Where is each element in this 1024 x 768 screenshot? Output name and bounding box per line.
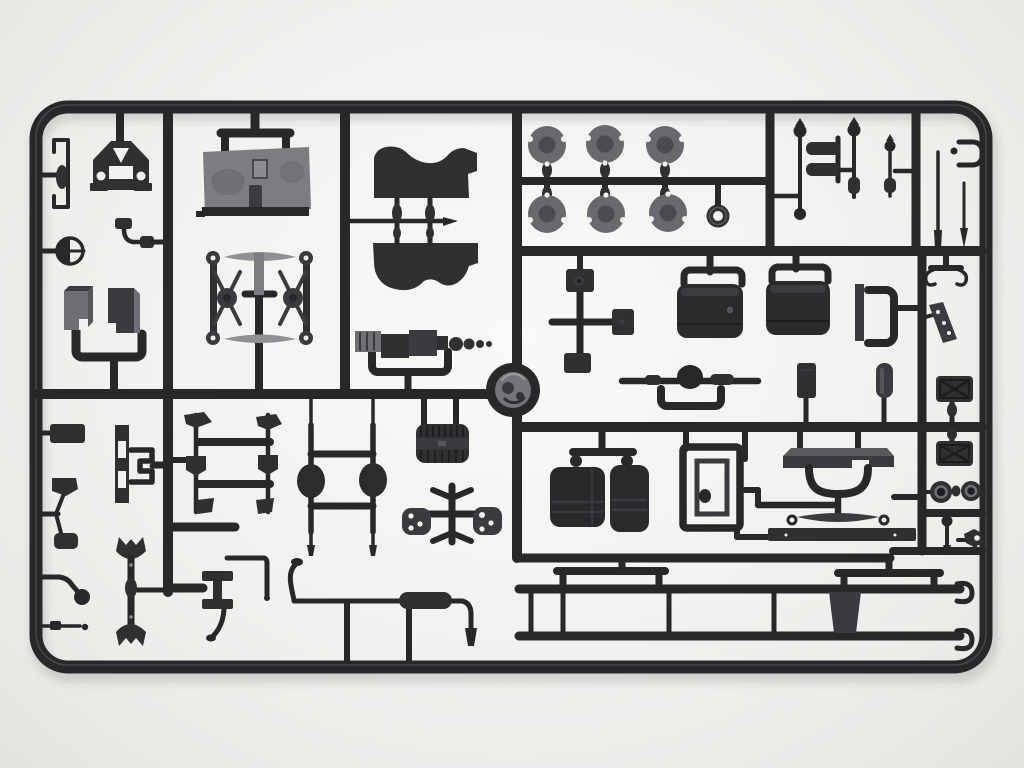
saddle-upper-part: [374, 147, 477, 198]
small-box-part: [797, 363, 816, 423]
chassis-ladder-part: [519, 558, 972, 649]
x-box-2-part: [936, 428, 973, 466]
exhaust-pipe-part: [290, 558, 477, 661]
ball-pin-part: [942, 516, 953, 552]
mirror-part: [42, 478, 78, 549]
wrench-clamp-part: [116, 537, 165, 646]
damper-pair-part: [184, 412, 282, 514]
fuel-tank-2-part: [766, 251, 830, 335]
ladder-bracket-part: [115, 425, 168, 503]
axle-rod-pair-part: [297, 399, 387, 556]
fuel-tank-1-part: [677, 251, 743, 338]
axle-linkage-part: [206, 251, 313, 394]
air-filter-part: [416, 394, 469, 463]
angled-plate-part: [922, 302, 957, 343]
tow-hooks-part: [926, 251, 967, 285]
seat-cushions-part: [550, 427, 649, 532]
saddle-pins-part: [345, 199, 458, 243]
pull-rod-1-part: [772, 118, 840, 220]
ring-part: [707, 181, 730, 228]
rear-axle-part: [622, 365, 758, 406]
a-frame-bracket-part: [90, 113, 152, 191]
flat-plate-part: [42, 424, 85, 443]
radiator-frame-part: [855, 284, 920, 343]
ball-lever-part: [42, 577, 90, 605]
pull-rod-3-part: [884, 134, 914, 196]
cab-panel-part: [196, 113, 311, 217]
cross-plates-part: [402, 486, 502, 542]
bench-seat-part: [768, 427, 916, 541]
gear-rod-part: [42, 621, 88, 630]
x-box-1-part: [936, 376, 973, 424]
thin-rod-long-part: [934, 152, 942, 251]
small-box-cluster-part: [552, 251, 634, 373]
pull-rod-2-part: [840, 117, 861, 197]
engine-part: [355, 330, 492, 394]
winch-hub-part: [486, 363, 540, 417]
sprue-svg: [0, 0, 1024, 768]
left-box-pair-part: [64, 286, 142, 394]
thin-rod-short-part: [960, 183, 968, 248]
step-bracket-part: [202, 558, 270, 642]
saddle-lower-part: [373, 243, 478, 290]
pulley-pair-part: [927, 481, 984, 503]
corner-bracket-part: [951, 142, 983, 165]
crank-handle-part: [115, 218, 164, 248]
sprue-photo: Photograph of a dark gray injection-mold…: [0, 0, 1024, 768]
small-cylinder-part: [876, 363, 893, 423]
steering-wheel-part: [41, 238, 84, 264]
